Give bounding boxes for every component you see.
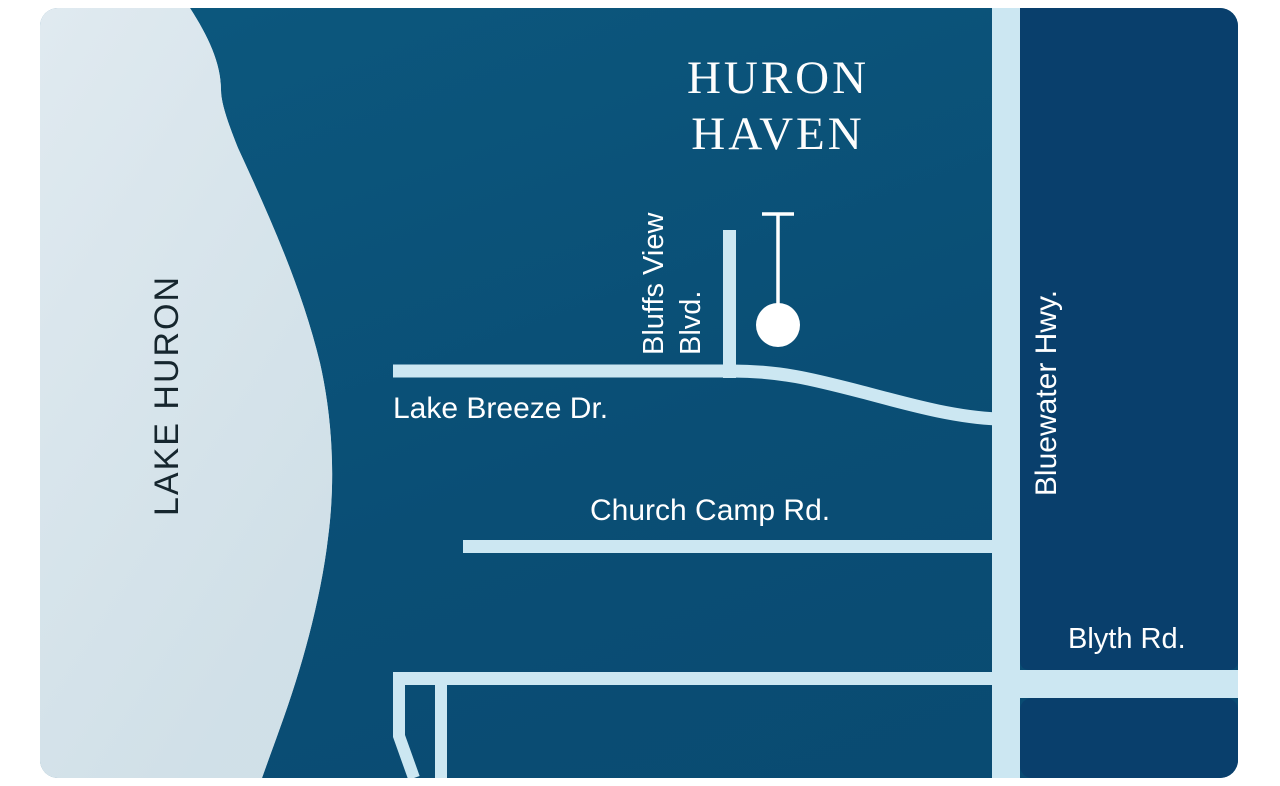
map-title-line2: HAVEN [528, 106, 1028, 162]
map-canvas: HURON HAVEN LAKE HURON Bluffs View Blvd.… [40, 8, 1238, 778]
label-bluffs-view-line1: Bluffs View [636, 175, 673, 355]
label-church-camp-rd: Church Camp Rd. [590, 494, 830, 528]
map-title: HURON HAVEN [528, 50, 1028, 162]
label-lake-breeze-dr: Lake Breeze Dr. [393, 392, 608, 426]
road-church-camp [463, 540, 998, 553]
label-bluewater-hwy: Bluewater Hwy. [1030, 268, 1064, 518]
label-bluffs-view-blvd: Bluffs View Blvd. [636, 175, 710, 355]
road-bluffs-view [723, 230, 736, 378]
road-blyth-east-segment [992, 670, 1238, 698]
road-loop-left-arm [399, 676, 414, 778]
lake-huron-shade [40, 8, 332, 778]
map-title-line1: HURON [528, 50, 1028, 106]
east-land-block-lower [1020, 698, 1238, 778]
label-bluffs-view-line2: Blvd. [673, 175, 710, 355]
label-blyth-rd: Blyth Rd. [1068, 623, 1186, 656]
label-lake-huron: LAKE HURON [150, 276, 184, 516]
road-blyth-west-segment [393, 672, 998, 685]
location-marker-icon [756, 214, 800, 347]
marker-dot [756, 303, 800, 347]
